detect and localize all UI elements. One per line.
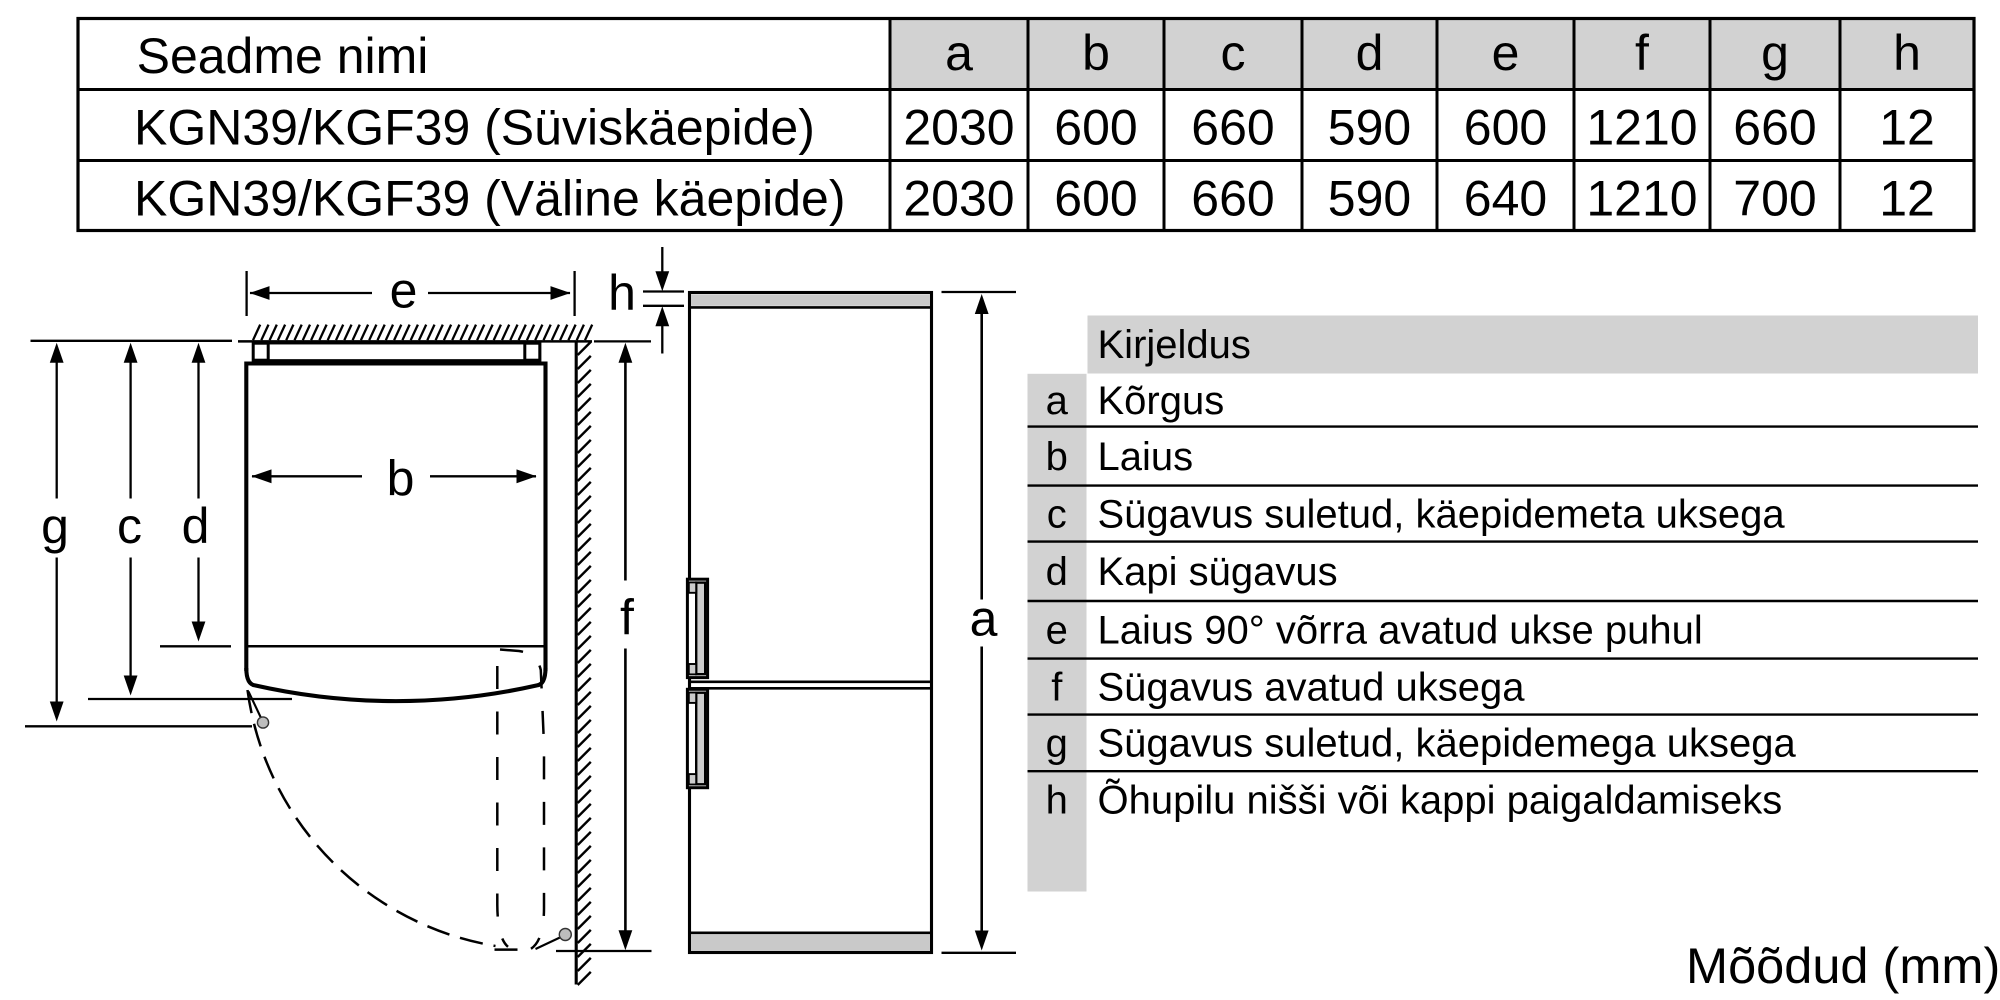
svg-text:12: 12 [1879,100,1935,156]
svg-text:590: 590 [1328,100,1411,156]
svg-text:Kirjeldus: Kirjeldus [1098,323,1251,367]
svg-text:e: e [1492,25,1520,81]
svg-text:d: d [1046,550,1068,594]
svg-text:e: e [390,263,418,319]
svg-text:e: e [1046,609,1068,653]
svg-text:KGN39/KGF39 (Süviskäepide): KGN39/KGF39 (Süviskäepide) [134,100,815,156]
svg-text:b: b [1082,25,1110,81]
svg-text:590: 590 [1328,171,1411,227]
svg-text:700: 700 [1733,171,1816,227]
svg-text:f: f [1635,25,1649,81]
svg-text:Sügavus suletud, käepidemeta u: Sügavus suletud, käepidemeta uksega [1098,492,1786,536]
svg-text:Seadme nimi: Seadme nimi [137,28,429,84]
svg-text:Kapi sügavus: Kapi sügavus [1098,550,1338,594]
svg-text:640: 640 [1464,171,1547,227]
svg-text:KGN39/KGF39 (Väline käepide): KGN39/KGF39 (Väline käepide) [134,171,845,227]
svg-text:660: 660 [1191,171,1274,227]
svg-text:Laius: Laius [1098,435,1194,479]
svg-text:Mõõdud (mm): Mõõdud (mm) [1686,937,2000,994]
svg-text:a: a [970,591,998,647]
svg-text:g: g [1046,722,1068,766]
svg-text:12: 12 [1879,171,1935,227]
svg-text:b: b [387,451,415,507]
svg-text:c: c [117,498,142,554]
svg-text:2030: 2030 [903,171,1014,227]
svg-text:c: c [1047,492,1067,536]
svg-text:h: h [1893,25,1921,81]
svg-text:Sügavus avatud uksega: Sügavus avatud uksega [1098,665,1526,709]
svg-text:Laius 90° võrra avatud ukse pu: Laius 90° võrra avatud ukse puhul [1098,609,1703,653]
svg-text:a: a [1046,379,1069,423]
svg-text:600: 600 [1054,171,1137,227]
svg-text:d: d [182,498,210,554]
svg-text:1210: 1210 [1586,100,1697,156]
svg-text:h: h [608,265,636,321]
svg-text:b: b [1046,435,1068,479]
svg-text:h: h [1046,778,1068,822]
svg-text:g: g [1761,25,1789,81]
svg-text:d: d [1356,25,1384,81]
svg-text:g: g [41,498,69,554]
svg-text:f: f [1051,665,1063,709]
svg-text:660: 660 [1733,100,1816,156]
svg-text:Õhupilu nišši või kappi paigal: Õhupilu nišši või kappi paigaldamiseks [1098,777,1783,822]
svg-text:a: a [945,25,973,81]
svg-text:600: 600 [1054,100,1137,156]
svg-text:660: 660 [1191,100,1274,156]
svg-text:Sügavus suletud, käepidemega u: Sügavus suletud, käepidemega uksega [1098,722,1797,766]
svg-text:c: c [1221,25,1246,81]
svg-text:1210: 1210 [1586,171,1697,227]
svg-text:f: f [620,590,634,646]
svg-text:2030: 2030 [903,100,1014,156]
svg-text:600: 600 [1464,100,1547,156]
svg-text:Kõrgus: Kõrgus [1098,379,1225,423]
